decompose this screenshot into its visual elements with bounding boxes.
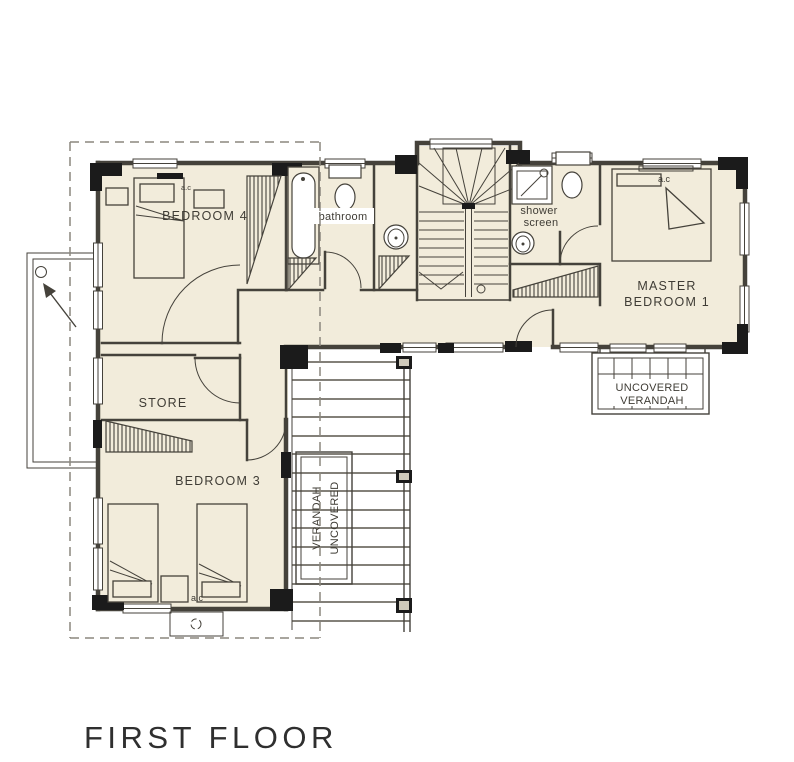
nightstand xyxy=(161,576,188,602)
bedroom3-ac-label: a.c xyxy=(191,593,204,603)
bedroom4-label: BEDROOM 4 xyxy=(162,209,248,223)
store-label: STORE xyxy=(139,396,188,410)
window xyxy=(643,159,701,168)
master-ac-label: a.c xyxy=(658,174,671,184)
shower-label-line2: screen xyxy=(524,217,559,229)
nightstand xyxy=(194,190,224,208)
window xyxy=(446,343,503,352)
window xyxy=(560,343,598,352)
window xyxy=(94,498,103,544)
ac-unit xyxy=(157,173,183,179)
window xyxy=(403,343,436,352)
window xyxy=(94,358,103,404)
window xyxy=(610,344,646,352)
master-furniture: a.c xyxy=(612,166,711,261)
pillow xyxy=(113,581,151,597)
verandah-right-label-line1: UNCOVERED xyxy=(616,382,689,394)
verandah-bottom-label-line2: UNCOVERED xyxy=(329,482,341,555)
bedroom3-label: BEDROOM 3 xyxy=(175,474,261,488)
window xyxy=(94,243,103,287)
window xyxy=(94,291,103,329)
pillow xyxy=(617,174,661,186)
window xyxy=(123,604,171,613)
verandah-bottom-label-line1: VERANDAH xyxy=(311,486,323,550)
nightstand xyxy=(106,188,128,205)
window xyxy=(133,159,177,168)
verandah-right-label-line2: VERANDAH xyxy=(620,395,684,407)
window xyxy=(740,203,749,255)
window xyxy=(94,548,103,590)
page-title: FIRST FLOOR xyxy=(84,720,338,755)
master-label-line1: MASTER xyxy=(637,279,696,293)
shower-label-line1: shower xyxy=(520,205,557,217)
master-label-line2: BEDROOM 1 xyxy=(624,295,710,309)
pillow xyxy=(202,582,240,597)
floor-plan-page: VERANDAH UNCOVERED UNCOVERED VERANDAH xyxy=(0,0,794,762)
window xyxy=(654,344,686,352)
pillow xyxy=(140,184,174,202)
floor-plan-drawing: VERANDAH UNCOVERED UNCOVERED VERANDAH xyxy=(0,0,794,762)
bedroom4-ac-label: a.c xyxy=(181,183,191,192)
bathroom-label: bathroom xyxy=(319,211,368,223)
wash-basin xyxy=(384,225,408,249)
shower xyxy=(512,166,552,204)
wash-basin xyxy=(512,232,534,254)
